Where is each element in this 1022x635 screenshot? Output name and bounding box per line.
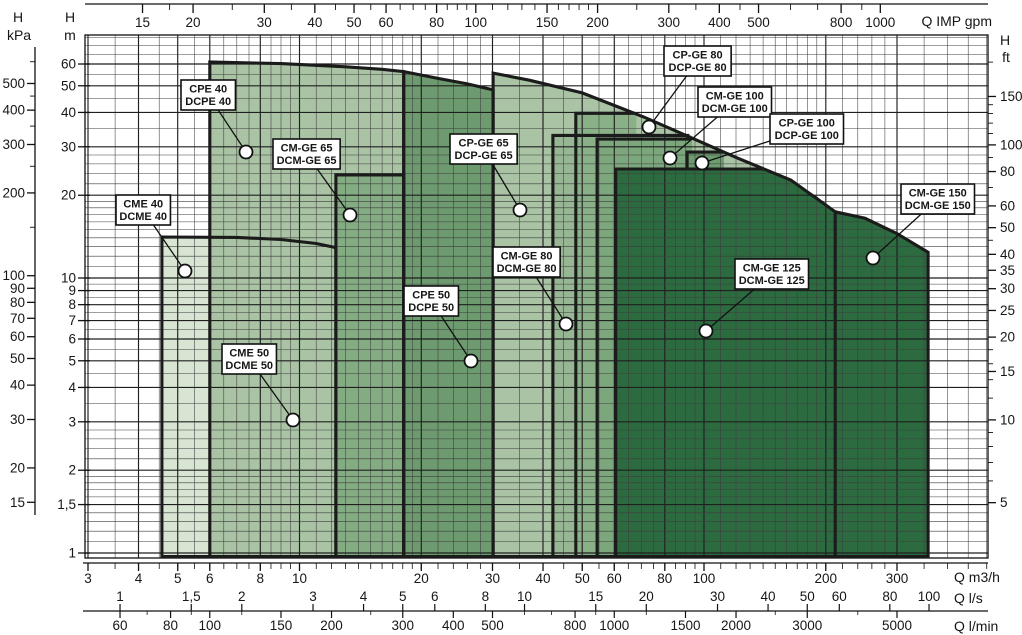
ls-tick-label: 50: [800, 589, 815, 604]
m-tick-label: 4: [68, 380, 76, 395]
lmin-tick-label: 3000: [792, 618, 822, 633]
ls-tick-label: 6: [431, 589, 439, 604]
pump-model-label: CP-GE 65: [459, 138, 509, 150]
callout-marker: [867, 252, 880, 265]
kpa-tick-label: 40: [10, 378, 25, 393]
m-tick-label: 30: [61, 139, 76, 154]
m3h-tick-label: 60: [607, 571, 622, 586]
kpa-tick-label: 30: [10, 412, 25, 427]
lmin-tick-label: 300: [391, 618, 414, 633]
gpm-tick-label: 500: [747, 15, 770, 30]
ft-tick-label: 60: [1000, 198, 1015, 213]
m3h-tick-label: 6: [206, 571, 214, 586]
lmin-tick-label: 80: [163, 618, 178, 633]
pump-model-label: DCP-GE 100: [775, 130, 839, 142]
ft-tick-label: 50: [1000, 220, 1015, 235]
m-tick-label: 8: [68, 297, 76, 312]
ft-tick-label: 100: [1000, 137, 1022, 152]
pump-model-label: DCM-GE 125: [739, 275, 805, 287]
pump-model-label: DCPE 40: [185, 96, 231, 108]
lmin-axis-title: Q l/min: [954, 618, 998, 634]
m-tick-label: 9: [68, 283, 76, 298]
ft-tick-label: 40: [1000, 247, 1015, 262]
lmin-tick-label: 200: [320, 618, 343, 633]
lmin-tick-label: 1000: [599, 618, 629, 633]
pump-model-label: CM-GE 150: [909, 188, 967, 200]
gpm-tick-label: 60: [379, 15, 394, 30]
ls-tick-label: 5: [399, 589, 407, 604]
m3h-tick-label: 300: [886, 571, 909, 586]
pump-selection-chart: 1520304050608010015020030040050080010003…: [0, 0, 1022, 635]
pump-model-label: DCM-GE 150: [905, 200, 971, 212]
ls-tick-label: 60: [832, 589, 847, 604]
kpa-tick-label: 300: [2, 137, 25, 152]
ls-tick-label: 20: [639, 589, 654, 604]
m-tick-label: 7: [68, 313, 76, 328]
callout-marker: [465, 355, 478, 368]
gpm-tick-label: 200: [586, 15, 609, 30]
m3h-tick-label: 100: [693, 571, 716, 586]
ls-tick-label: 2: [238, 589, 246, 604]
pump-model-label: CM-GE 100: [706, 91, 764, 103]
kpa-tick-label: 50: [10, 351, 25, 366]
pump-model-label: DCM-GE 65: [277, 155, 337, 167]
ls-tick-label: 8: [482, 589, 490, 604]
kpa-tick-label: 200: [2, 185, 25, 200]
kpa-axis-title-h: H: [13, 9, 23, 25]
kpa-tick-label: 20: [10, 460, 25, 475]
pump-model-label: DCM-GE 80: [497, 263, 557, 275]
m-tick-label: 6: [68, 332, 76, 347]
m3h-tick-label: 30: [485, 571, 500, 586]
gpm-tick-label: 20: [186, 15, 201, 30]
chart-canvas: 1520304050608010015020030040050080010003…: [0, 0, 1022, 635]
m3h-tick-label: 80: [657, 571, 672, 586]
pump-model-label: CPE 50: [412, 290, 450, 302]
ft-tick-label: 5: [1000, 495, 1008, 510]
ls-tick-label: 40: [761, 589, 776, 604]
gpm-tick-label: 800: [830, 15, 853, 30]
callout-marker: [240, 146, 253, 159]
kpa-tick-label: 400: [2, 103, 25, 118]
ft-tick-label: 30: [1000, 281, 1015, 296]
callout-marker: [179, 265, 192, 278]
m-tick-label: 40: [61, 105, 76, 120]
gpm-ruler: 152030405060801001502003004005008001000: [85, 4, 988, 30]
pump-model-label: DCME 50: [225, 360, 273, 372]
ft-tick-label: 80: [1000, 164, 1015, 179]
callout-marker: [643, 121, 656, 134]
pump-model-label: DCPE 50: [408, 302, 454, 314]
lmin-tick-label: 800: [564, 618, 587, 633]
gpm-tick-label: 100: [465, 15, 488, 30]
gpm-axis-title: Q IMP gpm: [921, 13, 992, 29]
gpm-tick-label: 40: [307, 15, 322, 30]
callout-marker: [514, 204, 527, 217]
gpm-tick-label: 15: [135, 15, 150, 30]
m-tick-label: 1,5: [57, 497, 76, 512]
m3h-tick-label: 3: [84, 571, 92, 586]
m3h-tick-label: 4: [135, 571, 143, 586]
m3h-tick-label: 20: [414, 571, 429, 586]
ft-axis-title-h: H: [1000, 32, 1010, 48]
ft-tick-label: 15: [1000, 364, 1015, 379]
gpm-tick-label: 300: [658, 15, 681, 30]
ls-tick-label: 30: [710, 589, 725, 604]
gpm-tick-label: 400: [708, 15, 731, 30]
ls-tick-label: 80: [882, 589, 897, 604]
lmin-tick-label: 100: [199, 618, 222, 633]
kpa-ruler: 500400300200100908070605040302015: [2, 47, 35, 515]
ft-tick-label: 25: [1000, 303, 1015, 318]
pump-model-label: DCP-GE 65: [455, 150, 513, 162]
kpa-tick-label: 15: [10, 495, 25, 510]
kpa-tick-label: 80: [10, 295, 25, 310]
pump-model-label: CME 40: [123, 199, 163, 211]
m-tick-label: 20: [61, 188, 76, 203]
ls-tick-label: 100: [918, 589, 941, 604]
callout-marker: [664, 152, 677, 165]
kpa-tick-label: 60: [10, 329, 25, 344]
ls-tick-label: 3: [309, 589, 317, 604]
pump-model-label: DCME 40: [119, 211, 167, 223]
ft-axis-title-unit: ft: [1002, 49, 1010, 65]
ft-tick-label: 35: [1000, 263, 1015, 278]
ls-tick-label: 1: [116, 589, 124, 604]
m3h-tick-label: 40: [536, 571, 551, 586]
m3h-tick-label: 200: [815, 571, 838, 586]
pump-model-label: CM-GE 65: [281, 143, 333, 155]
lmin-tick-label: 60: [113, 618, 128, 633]
ls-tick-label: 15: [588, 589, 603, 604]
m-tick-label: 5: [68, 353, 76, 368]
m3h-tick-label: 8: [257, 571, 265, 586]
callout-marker: [696, 157, 709, 170]
m3h-tick-label: 5: [174, 571, 182, 586]
m3h-ruler: 3456810203040506080100200300: [83, 563, 988, 586]
gpm-tick-label: 1000: [865, 15, 895, 30]
ft-tick-label: 10: [1000, 412, 1015, 427]
callout-marker: [287, 414, 300, 427]
ft-ruler: 150100806050403530252015105: [988, 62, 1022, 510]
lmin-tick-label: 400: [442, 618, 465, 633]
m-axis-title-h: H: [65, 9, 75, 25]
m3h-tick-label: 50: [575, 571, 590, 586]
ls-tick-label: 4: [360, 589, 368, 604]
m-tick-label: 60: [61, 57, 76, 72]
pump-model-label: CM-GE 125: [743, 263, 801, 275]
pump-model-label: DCM-GE 100: [702, 103, 768, 115]
m-tick-label: 1: [68, 546, 76, 561]
callout-marker: [560, 318, 573, 331]
lmin-tick-label: 500: [481, 618, 504, 633]
kpa-axis-title-unit: kPa: [7, 27, 31, 43]
region-cmge65: [336, 175, 404, 557]
pump-model-label: DCP-GE 80: [669, 62, 727, 74]
m-tick-label: 3: [68, 414, 76, 429]
kpa-tick-label: 90: [10, 281, 25, 296]
lmin-tick-label: 2000: [721, 618, 751, 633]
m-axis-title-unit: m: [64, 27, 76, 43]
m-tick-label: 50: [61, 78, 76, 93]
lmin-tick-label: 1500: [670, 618, 700, 633]
ls-tick-label: 1,5: [182, 589, 201, 604]
callout-marker: [700, 325, 713, 338]
m3h-tick-label: 10: [292, 571, 307, 586]
ft-tick-label: 150: [1000, 89, 1022, 104]
kpa-tick-label: 500: [2, 76, 25, 91]
region-cmge125: [616, 169, 836, 557]
ft-tick-label: 20: [1000, 330, 1015, 345]
gpm-tick-label: 150: [536, 15, 559, 30]
ls-tick-label: 10: [517, 589, 532, 604]
lmin-tick-label: 5000: [882, 618, 912, 633]
pump-model-label: CM-GE 80: [501, 251, 553, 263]
m-tick-label: 2: [68, 463, 76, 478]
m3h-axis-title: Q m3/h: [954, 569, 1000, 585]
lmin-tick-label: 150: [270, 618, 293, 633]
gpm-tick-label: 50: [347, 15, 362, 30]
pump-model-label: CP-GE 80: [673, 50, 723, 62]
ls-axis-title: Q l/s: [954, 590, 983, 606]
pump-model-label: CPE 40: [189, 84, 227, 96]
pump-model-label: CME 50: [229, 348, 269, 360]
gpm-tick-label: 30: [257, 15, 272, 30]
ls-lmin-ruler: 11,5234568101520304050608010060801001502…: [83, 589, 988, 633]
callout-marker: [344, 209, 357, 222]
kpa-tick-label: 70: [10, 311, 25, 326]
pump-model-label: CP-GE 100: [779, 118, 835, 130]
gpm-tick-label: 80: [429, 15, 444, 30]
